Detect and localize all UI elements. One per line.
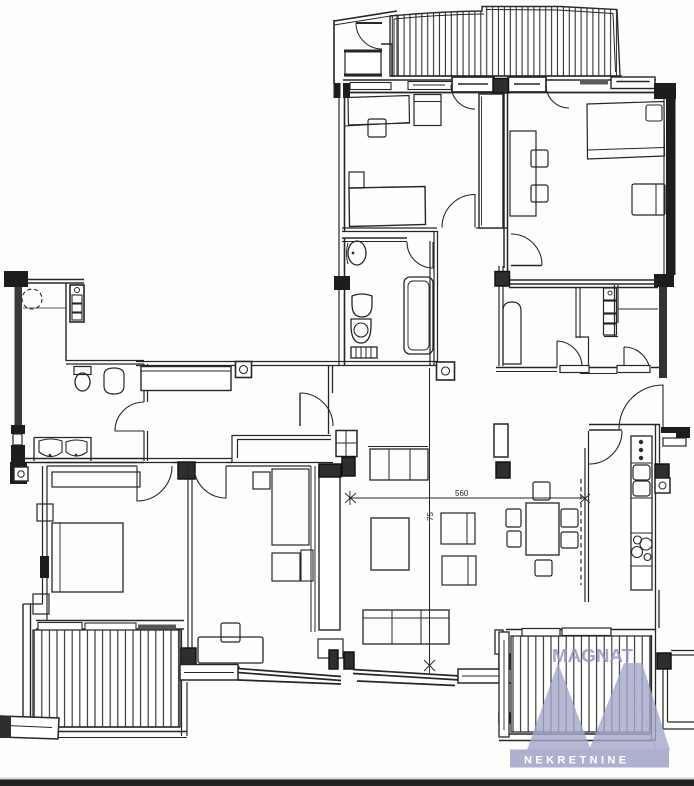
svg-text:MAGNAT: MAGNAT: [552, 645, 634, 666]
svg-text:560: 560: [455, 489, 469, 498]
svg-text:75: 75: [426, 512, 435, 521]
svg-text:NEKRETNINE: NEKRETNINE: [524, 755, 630, 767]
